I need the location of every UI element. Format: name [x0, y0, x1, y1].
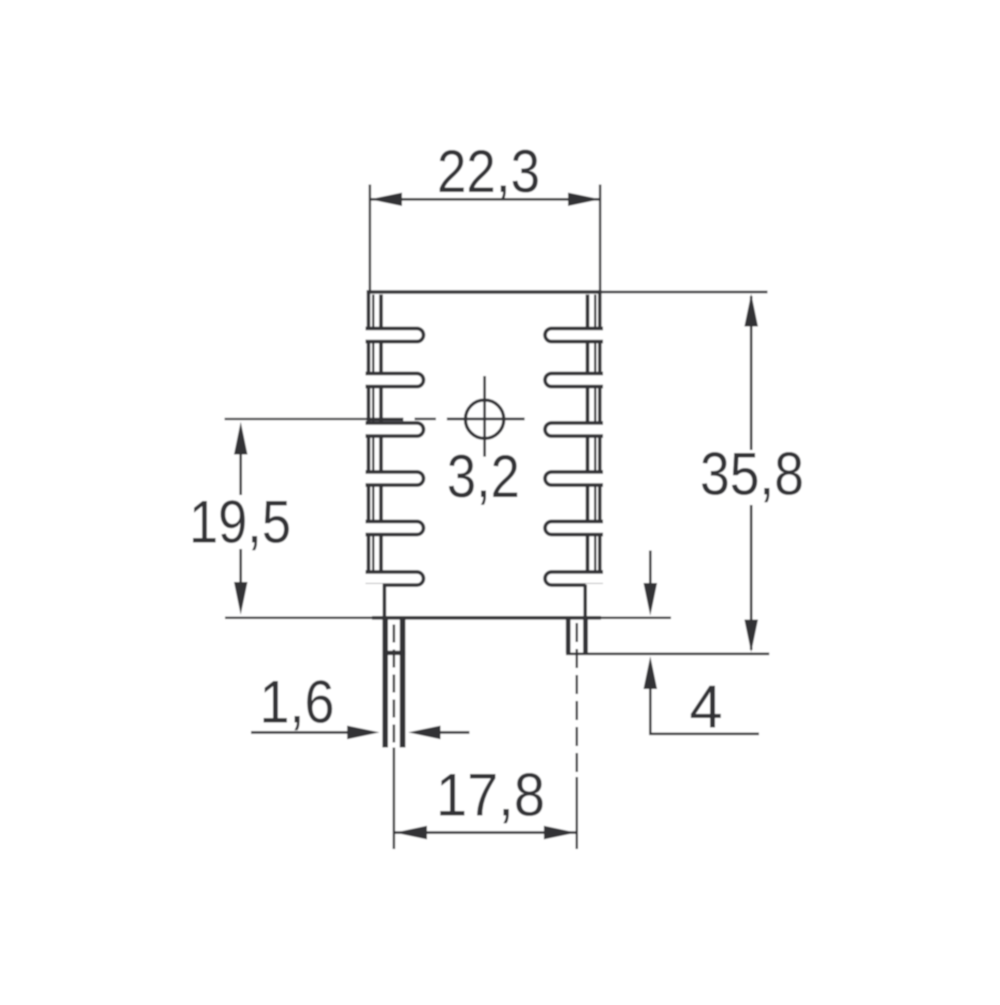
svg-text:4: 4	[690, 674, 723, 741]
svg-text:17,8: 17,8	[436, 762, 545, 829]
svg-text:22,3: 22,3	[437, 138, 540, 205]
svg-text:35,8: 35,8	[700, 441, 804, 508]
svg-text:19,5: 19,5	[189, 489, 291, 556]
svg-text:1,6: 1,6	[260, 669, 335, 736]
svg-text:3,2: 3,2	[447, 443, 520, 510]
